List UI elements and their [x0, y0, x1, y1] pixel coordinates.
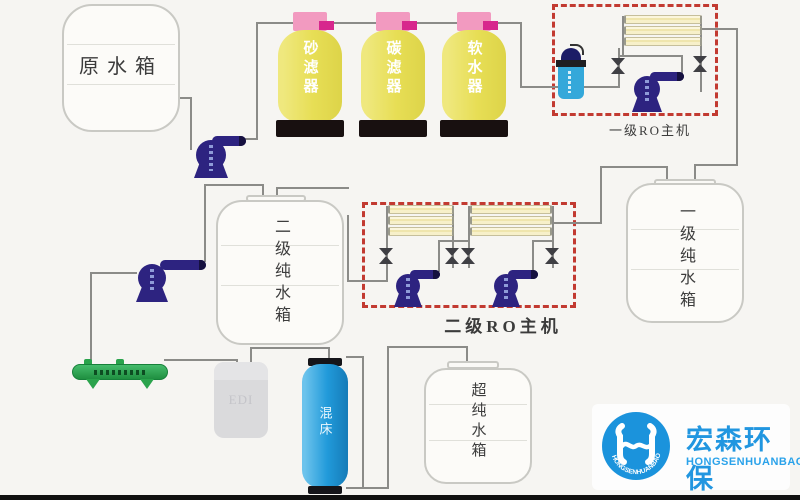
- ro1-highpressure-pump: [630, 70, 684, 112]
- vessel-base: [440, 120, 508, 137]
- manifold-leg: [140, 379, 154, 389]
- valve-icon: [693, 56, 707, 72]
- vessel-base: [276, 120, 344, 137]
- multiport-valve-icon: [483, 21, 498, 30]
- valve-icon: [379, 248, 393, 264]
- pipe: [554, 222, 602, 224]
- ro-membrane-stack: [470, 205, 552, 238]
- process-flow-diagram: 原水箱 砂滤器 碳滤器 软水器 一级RO主机: [0, 0, 800, 500]
- softener-label: 软水器: [464, 40, 485, 97]
- manifold-microtext: [94, 370, 146, 375]
- pipe: [600, 166, 668, 168]
- membrane-tube: [470, 227, 552, 236]
- pipe: [695, 164, 738, 166]
- vessel-base: [359, 120, 427, 137]
- ro2-pump-2: [492, 268, 538, 308]
- pump-outlet: [160, 260, 206, 270]
- raw-water-tank: 原水箱: [62, 4, 180, 132]
- uv-sterilizer-manifold: [70, 356, 170, 392]
- membrane-tube: [624, 26, 702, 35]
- pipe: [520, 22, 522, 87]
- membrane-tube: [624, 15, 702, 24]
- pump-microtext: [406, 278, 410, 300]
- pipe: [702, 28, 738, 30]
- pipe: [277, 187, 349, 189]
- filter-microtext: [568, 71, 571, 93]
- membrane-tube: [388, 216, 454, 225]
- column-cap: [308, 486, 342, 494]
- raw-water-pump: [194, 132, 246, 180]
- sand-filter-label: 砂滤器: [300, 40, 321, 97]
- multiport-valve-icon: [319, 21, 334, 30]
- pipe: [532, 240, 552, 242]
- pump-microtext: [645, 80, 649, 104]
- membrane-tube: [624, 37, 702, 46]
- bottom-border-bar: [0, 495, 800, 500]
- pipe: [387, 346, 468, 348]
- sand-filter-vessel: 砂滤器: [278, 10, 342, 138]
- stage2-pure-tank-label: 二级纯水箱: [268, 218, 292, 328]
- membrane-tube: [470, 205, 552, 214]
- stage2-pure-tank: 二级纯水箱: [216, 200, 344, 345]
- pipe: [90, 272, 137, 274]
- membrane-tube: [388, 227, 454, 236]
- mixed-bed-column: 混床: [302, 358, 348, 494]
- ro-membrane-stack: [388, 205, 454, 238]
- pipe: [90, 272, 92, 363]
- pipe: [362, 356, 364, 488]
- softener-vessel: 软水器: [442, 10, 506, 138]
- pipe: [736, 28, 738, 166]
- edi-label: EDI: [214, 392, 268, 408]
- membrane-tube: [470, 216, 552, 225]
- valve-icon: [461, 248, 475, 264]
- pipe: [204, 184, 206, 262]
- pipe: [387, 346, 389, 488]
- multiport-valve-icon: [402, 21, 417, 30]
- pump-microtext: [504, 278, 508, 300]
- pipe: [190, 97, 192, 150]
- pipe: [438, 240, 468, 242]
- ro-membrane-stack: [624, 15, 702, 48]
- valve-icon: [445, 248, 459, 264]
- pipe: [256, 22, 258, 140]
- stage1-pure-tank-label: 一级纯水箱: [673, 203, 697, 313]
- valve-icon: [611, 58, 625, 74]
- ro2-pump-1: [394, 268, 440, 308]
- pipe: [347, 215, 349, 282]
- pipe: [204, 184, 264, 186]
- ro2-unit-label: 二级RO主机: [418, 312, 588, 337]
- ultra-pure-tank-label: 超纯水箱: [468, 382, 489, 462]
- filter-body: [558, 67, 584, 99]
- logo-medallion-icon: HONGSENHUANBAO: [600, 410, 672, 482]
- valve-icon: [545, 248, 559, 264]
- membrane-tube: [388, 205, 454, 214]
- pipe: [250, 347, 330, 349]
- carbon-filter-label: 碳滤器: [383, 40, 404, 97]
- raw-water-tank-label: 原水箱: [64, 50, 178, 79]
- pipe: [520, 86, 560, 88]
- logo-english-name: HONGSENHUANBAO: [686, 456, 800, 468]
- transfer-pump: [136, 254, 206, 302]
- tank-line: [67, 84, 175, 85]
- pipe: [346, 487, 389, 489]
- stage1-pure-tank: 一级纯水箱: [626, 183, 744, 323]
- pipe: [164, 359, 238, 361]
- edi-module: EDI: [214, 362, 268, 438]
- pipe: [584, 86, 619, 88]
- pipe: [347, 280, 388, 282]
- tank-line: [67, 44, 175, 45]
- ro1-unit-label: 一级RO主机: [585, 120, 715, 139]
- pipe: [600, 166, 602, 223]
- company-logo: HONGSENHUANBAO 宏森环保 HONGSENHUANBAO: [592, 404, 790, 490]
- mixed-bed-label: 混床: [316, 406, 335, 438]
- precision-filter: [556, 44, 586, 100]
- pipe: [618, 55, 682, 57]
- filter-band: [556, 60, 586, 67]
- ultra-pure-tank: 超纯水箱: [424, 368, 532, 484]
- manifold-leg: [86, 379, 100, 389]
- pump-microtext: [209, 145, 213, 171]
- pump-microtext: [150, 269, 154, 293]
- carbon-filter-vessel: 碳滤器: [361, 10, 425, 138]
